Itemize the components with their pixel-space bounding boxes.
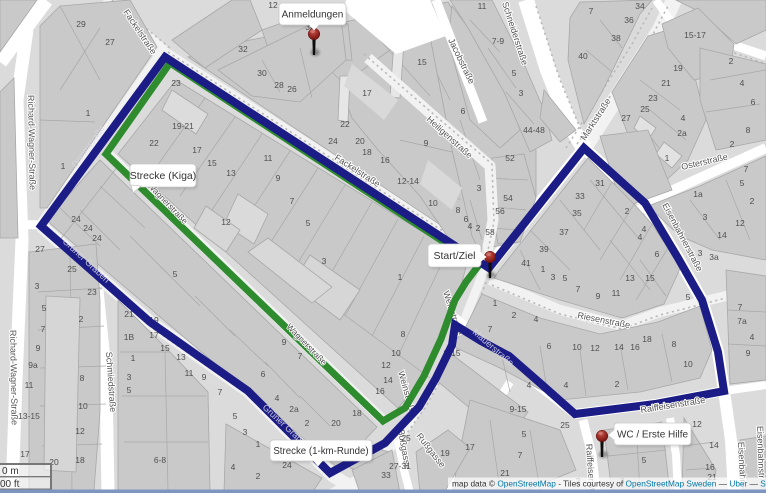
svg-text:5: 5 [563, 273, 568, 283]
svg-text:27: 27 [621, 113, 631, 123]
svg-text:2: 2 [79, 314, 84, 324]
svg-text:13: 13 [226, 168, 236, 178]
svg-text:4: 4 [638, 232, 643, 242]
svg-text:18: 18 [352, 408, 362, 418]
svg-text:33: 33 [381, 470, 391, 480]
svg-text:9-15: 9-15 [509, 404, 526, 414]
svg-text:4: 4 [231, 462, 236, 472]
svg-text:Strecke (Kiga): Strecke (Kiga) [130, 170, 197, 182]
svg-text:5: 5 [42, 303, 47, 313]
svg-text:6: 6 [751, 97, 756, 107]
svg-text:9: 9 [746, 348, 751, 358]
svg-text:5: 5 [173, 269, 178, 279]
svg-text:26: 26 [287, 84, 297, 94]
svg-text:3: 3 [698, 248, 703, 258]
svg-text:20: 20 [355, 136, 365, 146]
svg-text:15-17: 15-17 [684, 30, 706, 40]
svg-text:34: 34 [635, 1, 645, 11]
svg-text:13-15: 13-15 [18, 411, 40, 421]
svg-text:54: 54 [503, 193, 513, 203]
svg-text:7: 7 [41, 324, 46, 334]
svg-text:10: 10 [428, 198, 438, 208]
svg-text:7: 7 [518, 450, 523, 460]
svg-text:2: 2 [615, 379, 620, 389]
svg-text:2: 2 [476, 223, 481, 233]
svg-text:7: 7 [589, 6, 594, 16]
svg-text:2: 2 [730, 139, 735, 149]
svg-text:27: 27 [35, 244, 45, 254]
svg-text:5: 5 [127, 385, 132, 395]
svg-text:17: 17 [20, 449, 30, 459]
svg-text:30: 30 [257, 68, 267, 78]
svg-text:9: 9 [36, 343, 41, 353]
svg-text:0 m: 0 m [2, 466, 19, 477]
svg-text:6: 6 [461, 106, 466, 116]
svg-text:4: 4 [564, 380, 569, 390]
svg-text:15: 15 [417, 57, 427, 67]
svg-text:24: 24 [71, 214, 81, 224]
svg-text:3a: 3a [709, 252, 719, 262]
svg-text:28: 28 [274, 80, 284, 90]
svg-text:13: 13 [625, 273, 635, 283]
svg-text:4: 4 [275, 393, 280, 403]
svg-text:Richard-Wagner-Straße: Richard-Wagner-Straße [26, 95, 38, 190]
svg-text:map data © OpenStreetMap - Til: map data © OpenStreetMap - Tiles courtes… [452, 479, 766, 489]
svg-text:5: 5 [512, 68, 517, 78]
svg-text:17: 17 [362, 88, 372, 98]
svg-text:9: 9 [424, 138, 429, 148]
svg-text:25: 25 [560, 420, 570, 430]
svg-text:14: 14 [717, 230, 727, 240]
svg-text:23: 23 [648, 93, 658, 103]
svg-text:5: 5 [686, 292, 691, 302]
svg-text:Eisenbahnstr: Eisenbahnstr [755, 426, 766, 479]
svg-text:4: 4 [642, 224, 647, 234]
svg-text:2: 2 [512, 310, 517, 320]
svg-text:24: 24 [92, 233, 102, 243]
svg-text:19-21: 19-21 [172, 121, 194, 131]
svg-text:18: 18 [362, 147, 372, 157]
svg-text:4: 4 [681, 113, 686, 123]
svg-text:27-31: 27-31 [389, 461, 411, 471]
svg-text:9: 9 [276, 173, 281, 183]
svg-text:19: 19 [673, 63, 683, 73]
svg-text:00 ft: 00 ft [0, 479, 20, 490]
svg-text:10: 10 [683, 359, 693, 369]
svg-text:6: 6 [655, 249, 660, 259]
svg-text:1: 1 [493, 298, 498, 308]
svg-text:22: 22 [340, 119, 350, 129]
svg-text:11: 11 [185, 368, 194, 378]
svg-text:6: 6 [547, 341, 552, 351]
svg-text:7: 7 [218, 387, 223, 397]
svg-text:4: 4 [468, 221, 473, 231]
svg-text:16: 16 [705, 462, 715, 472]
svg-text:8: 8 [80, 373, 85, 383]
svg-text:1: 1 [61, 161, 66, 171]
svg-text:Strecke (1-km-Runde): Strecke (1-km-Runde) [273, 446, 368, 457]
svg-text:21: 21 [661, 78, 671, 88]
svg-text:2: 2 [625, 206, 630, 216]
svg-text:20: 20 [331, 418, 341, 428]
svg-text:3: 3 [243, 427, 248, 437]
svg-text:5: 5 [642, 455, 647, 465]
svg-text:5: 5 [522, 429, 527, 439]
svg-text:37: 37 [559, 227, 569, 237]
svg-text:12: 12 [735, 218, 745, 228]
svg-text:13: 13 [176, 352, 186, 362]
svg-text:25: 25 [67, 264, 77, 274]
svg-text:16: 16 [375, 386, 385, 396]
svg-text:7a: 7a [737, 316, 747, 326]
svg-text:3: 3 [477, 183, 482, 193]
svg-text:11: 11 [25, 380, 34, 390]
svg-text:32: 32 [238, 44, 248, 54]
svg-text:4: 4 [740, 78, 745, 88]
svg-text:5: 5 [740, 178, 745, 188]
svg-text:56: 56 [495, 206, 505, 216]
svg-text:1B: 1B [124, 332, 135, 342]
svg-text:12: 12 [75, 426, 85, 436]
svg-text:19: 19 [440, 448, 450, 458]
svg-text:15: 15 [207, 158, 217, 168]
svg-text:15: 15 [645, 273, 655, 283]
svg-text:7: 7 [290, 196, 295, 206]
svg-text:7: 7 [738, 302, 743, 312]
svg-text:14: 14 [709, 440, 719, 450]
svg-text:14: 14 [614, 342, 624, 352]
svg-text:44-48: 44-48 [523, 125, 545, 135]
svg-text:16: 16 [630, 342, 640, 352]
svg-text:1: 1 [86, 108, 91, 118]
svg-text:1: 1 [541, 264, 546, 274]
svg-text:4: 4 [527, 380, 532, 390]
svg-text:10: 10 [78, 401, 88, 411]
svg-text:2a: 2a [677, 128, 687, 138]
svg-text:3: 3 [519, 88, 524, 98]
svg-text:1: 1 [256, 439, 261, 449]
svg-text:8: 8 [746, 125, 751, 135]
svg-text:1a: 1a [693, 189, 703, 199]
svg-text:12: 12 [692, 419, 702, 429]
svg-text:11: 11 [612, 288, 621, 298]
svg-text:WC / Erste Hilfe: WC / Erste Hilfe [617, 430, 689, 441]
svg-text:18: 18 [642, 334, 652, 344]
svg-text:12: 12 [381, 360, 391, 370]
svg-text:10: 10 [391, 348, 401, 358]
svg-text:38: 38 [611, 33, 621, 43]
svg-text:1: 1 [665, 153, 670, 163]
svg-text:15: 15 [160, 343, 170, 353]
svg-text:Anmeldungen: Anmeldungen [282, 10, 344, 21]
svg-text:4: 4 [750, 332, 755, 342]
svg-text:8: 8 [456, 205, 461, 215]
svg-text:35: 35 [572, 208, 582, 218]
svg-text:3: 3 [35, 281, 40, 291]
svg-text:9: 9 [596, 291, 601, 301]
svg-text:25: 25 [401, 433, 411, 443]
svg-text:23: 23 [87, 287, 97, 297]
svg-text:5: 5 [306, 218, 311, 228]
svg-text:9: 9 [282, 337, 287, 347]
svg-text:17: 17 [465, 442, 475, 452]
svg-text:24: 24 [83, 223, 93, 233]
svg-text:7: 7 [744, 164, 749, 174]
svg-text:3: 3 [127, 372, 132, 382]
svg-text:2: 2 [305, 418, 310, 428]
svg-text:7-9: 7-9 [492, 36, 505, 46]
svg-text:2a: 2a [289, 404, 299, 414]
svg-text:23: 23 [171, 78, 181, 88]
svg-text:18: 18 [75, 455, 85, 465]
svg-text:6: 6 [261, 369, 266, 379]
svg-text:12: 12 [221, 217, 231, 227]
svg-text:52: 52 [505, 153, 515, 163]
svg-text:Start/Ziel: Start/Ziel [433, 250, 475, 262]
svg-text:17: 17 [192, 145, 202, 155]
svg-text:1: 1 [131, 353, 136, 363]
svg-text:9: 9 [202, 372, 207, 382]
svg-text:39: 39 [539, 244, 549, 254]
svg-text:14: 14 [383, 375, 393, 385]
svg-text:11: 11 [264, 153, 273, 163]
svg-text:16: 16 [380, 155, 390, 165]
svg-text:3: 3 [322, 256, 327, 266]
svg-text:41: 41 [521, 258, 531, 268]
svg-text:27: 27 [105, 37, 115, 47]
svg-text:7: 7 [576, 284, 581, 294]
svg-text:7: 7 [488, 324, 493, 334]
svg-text:40: 40 [578, 51, 588, 61]
svg-text:4: 4 [534, 314, 539, 324]
svg-text:8: 8 [672, 339, 677, 349]
svg-text:31: 31 [595, 178, 605, 188]
svg-text:22: 22 [149, 138, 159, 148]
svg-text:8: 8 [401, 329, 406, 339]
svg-text:3: 3 [703, 212, 708, 222]
svg-text:5: 5 [233, 411, 238, 421]
svg-text:6-8: 6-8 [154, 455, 167, 465]
svg-text:3: 3 [551, 272, 556, 282]
svg-text:10: 10 [572, 342, 582, 352]
svg-text:2: 2 [256, 471, 261, 481]
svg-text:12-14: 12-14 [397, 176, 419, 186]
svg-text:12: 12 [590, 343, 600, 353]
svg-text:9a: 9a [28, 360, 38, 370]
svg-text:12: 12 [268, 0, 278, 10]
svg-text:25: 25 [640, 104, 650, 114]
svg-text:33: 33 [575, 191, 585, 201]
svg-text:1: 1 [398, 272, 403, 282]
svg-text:29: 29 [76, 19, 86, 29]
svg-text:36: 36 [624, 15, 634, 25]
svg-text:7: 7 [298, 351, 303, 361]
svg-text:24: 24 [328, 136, 338, 146]
svg-text:58: 58 [485, 227, 495, 237]
svg-text:2: 2 [750, 196, 755, 206]
svg-text:2: 2 [729, 56, 734, 66]
svg-text:21: 21 [500, 468, 510, 478]
svg-text:11: 11 [478, 1, 487, 11]
